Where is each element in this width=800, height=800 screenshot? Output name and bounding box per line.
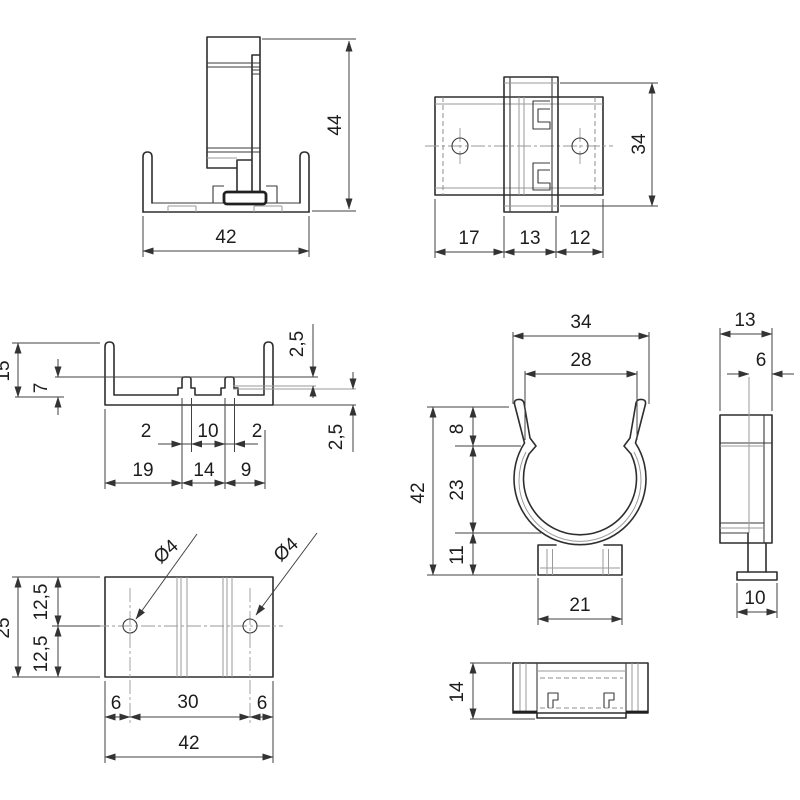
clip-base-light-lines xyxy=(540,549,620,575)
front-channel-pads xyxy=(168,206,282,212)
front-channel-left-wall xyxy=(143,152,152,212)
view-front-assembly: 42 44 xyxy=(143,37,356,257)
view-clip-front: 34 28 8 23 11 42 21 xyxy=(408,312,649,625)
dim-profile-t-top: 2,5 xyxy=(287,331,308,357)
side-foot xyxy=(737,572,777,580)
dim-clip-inner-width: 28 xyxy=(570,350,591,371)
dim-profile-r2a: 19 xyxy=(132,460,153,481)
technical-drawing-canvas: 42 44 34 17 13 12 15 7 xyxy=(0,0,800,800)
profile-rib-lines xyxy=(233,386,356,389)
side-body-details xyxy=(720,415,772,543)
dim-side-w-foot: 10 xyxy=(744,588,765,609)
dim-plan-hole2: Ø4 xyxy=(270,533,303,566)
plan-left-extensions xyxy=(12,577,100,677)
dim-profile-r1a: 2 xyxy=(141,421,152,442)
top-band-steps xyxy=(533,101,550,190)
plan-groove-lines xyxy=(177,577,232,677)
front-foot-plate xyxy=(224,192,266,204)
dim-plan-b3: 6 xyxy=(257,693,268,714)
small-light-lines xyxy=(520,663,638,713)
dim-clip-c1: 8 xyxy=(447,424,468,435)
profile-outline xyxy=(105,342,273,405)
side-step-column xyxy=(748,533,766,572)
view-clip-bottom: 14 xyxy=(447,663,648,719)
dim-side-w-step: 6 xyxy=(756,350,767,371)
dim-profile-t-bottom: 2,5 xyxy=(326,424,347,450)
dim-plan-hole1: Ø4 xyxy=(150,535,183,568)
view-top-assembly: 34 17 13 12 xyxy=(425,77,658,258)
dim-profile-r2c: 9 xyxy=(241,460,252,481)
dim-profile-h-inner: 7 xyxy=(31,383,52,394)
clip-inner-shading-arc xyxy=(519,452,641,541)
dim-front-width: 42 xyxy=(215,227,236,248)
view-plan: Ø4 Ø4 25 12,5 12,5 6 30 6 42 xyxy=(0,533,317,763)
front-channel-right-wall xyxy=(300,152,309,212)
view-profile: 15 7 2,5 2,5 2 10 2 19 14 9 xyxy=(0,324,356,489)
dim-profile-r1c: 2 xyxy=(252,421,263,442)
dim-side-w-top: 13 xyxy=(734,310,755,331)
dim-profile-r1b: 10 xyxy=(197,421,218,442)
clip-base-outline xyxy=(538,545,622,575)
front-post-outline xyxy=(207,37,260,192)
dim-plan-b1: 6 xyxy=(111,693,122,714)
dim-profile-r2b: 14 xyxy=(193,460,215,481)
dim-plan-h2: 12,5 xyxy=(31,636,52,673)
dim-plan-b2: 30 xyxy=(177,692,198,713)
dim-clip-outer-width: 34 xyxy=(570,312,592,333)
technical-drawing-page: 42 44 34 17 13 12 15 7 xyxy=(0,0,800,800)
dim-clip-base-width: 21 xyxy=(569,595,590,616)
clip-outline xyxy=(514,399,646,544)
dim-plan-w-total: 42 xyxy=(178,733,199,754)
clip-left-extensions xyxy=(427,407,541,575)
dim-front-height: 44 xyxy=(325,114,346,136)
dim-top-w2: 13 xyxy=(519,228,540,249)
dim-clip-total-height: 42 xyxy=(408,482,429,503)
dim-plan-h-total: 25 xyxy=(0,617,14,638)
view-clip-side: 13 6 10 xyxy=(720,310,794,618)
dim-top-w1: 17 xyxy=(458,228,479,249)
dim-small-height: 14 xyxy=(447,681,468,703)
dim-top-w3: 12 xyxy=(569,228,590,249)
clip-ext-inner-width xyxy=(525,371,637,440)
dim-clip-c2: 23 xyxy=(447,479,468,500)
dim-profile-h-total: 15 xyxy=(0,360,14,381)
side-light-lines xyxy=(720,377,764,533)
small-hook-tabs xyxy=(548,693,614,708)
dim-top-height: 34 xyxy=(629,133,650,155)
dim-clip-c3: 11 xyxy=(447,545,468,565)
dim-plan-h1: 12,5 xyxy=(31,584,52,621)
